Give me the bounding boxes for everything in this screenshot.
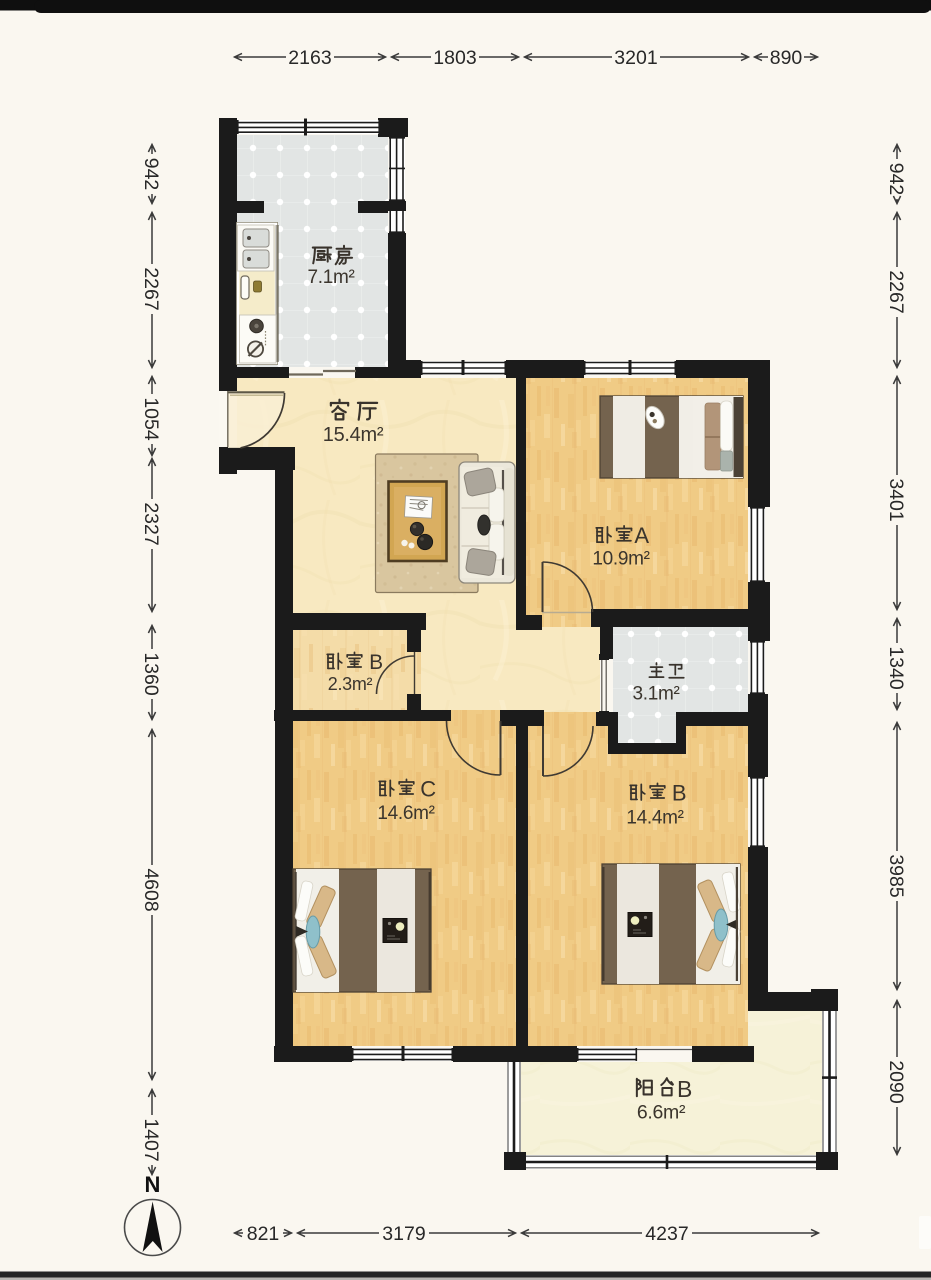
svg-text:3985: 3985 (885, 854, 907, 898)
svg-text:N: N (145, 1172, 161, 1197)
svg-text:821: 821 (247, 1223, 280, 1245)
svg-text:4608: 4608 (140, 868, 162, 911)
svg-text:A: A (634, 523, 649, 548)
svg-text:1803: 1803 (433, 47, 476, 69)
svg-text:890: 890 (770, 47, 803, 69)
svg-text:3179: 3179 (382, 1223, 425, 1245)
svg-text:942: 942 (140, 158, 162, 191)
svg-text:3201: 3201 (614, 47, 657, 69)
svg-text:2267: 2267 (885, 270, 907, 313)
svg-text:10.9m²: 10.9m² (592, 549, 649, 570)
svg-text:14.4m²: 14.4m² (626, 808, 683, 829)
svg-text:1407: 1407 (140, 1118, 162, 1161)
svg-text:B: B (677, 1076, 692, 1102)
svg-text:3401: 3401 (885, 478, 907, 521)
svg-text:942: 942 (885, 163, 907, 196)
svg-text:2163: 2163 (288, 47, 331, 69)
svg-text:14.6m²: 14.6m² (377, 803, 434, 824)
svg-text:2090: 2090 (885, 1060, 907, 1104)
svg-text:1054: 1054 (140, 397, 162, 441)
svg-text:2.3m²: 2.3m² (328, 674, 373, 694)
svg-text:3.1m²: 3.1m² (632, 684, 679, 705)
svg-text:C: C (420, 777, 436, 802)
svg-text:2327: 2327 (140, 502, 162, 545)
svg-text:15.4m²: 15.4m² (323, 424, 384, 446)
svg-text:1360: 1360 (140, 652, 162, 696)
svg-text:1340: 1340 (885, 646, 907, 690)
svg-text:B: B (672, 781, 686, 806)
svg-text:6.6m²: 6.6m² (637, 1102, 686, 1124)
svg-text:7.1m²: 7.1m² (307, 267, 354, 288)
svg-text:2267: 2267 (140, 267, 162, 310)
svg-text:4237: 4237 (645, 1223, 688, 1245)
svg-text:B: B (369, 651, 383, 674)
